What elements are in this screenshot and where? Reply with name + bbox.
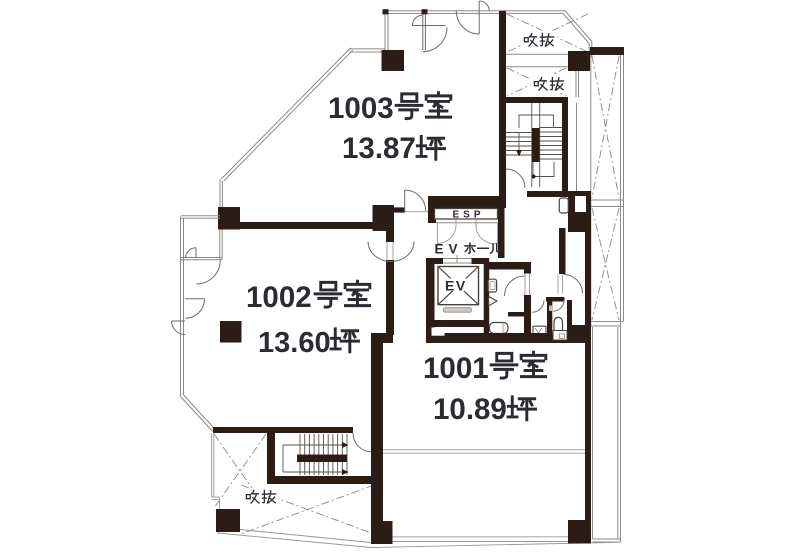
svg-text:1002: 1002 [246,281,312,314]
svg-text:1001: 1001 [423,352,489,385]
svg-text:13.87: 13.87 [342,132,416,165]
svg-text:EV: EV [445,278,467,294]
svg-text:10.89: 10.89 [433,393,507,426]
svg-text:13.60: 13.60 [258,327,331,359]
svg-text:1003: 1003 [328,92,394,125]
svg-text:EV: EV [435,242,463,257]
svg-text:ESP: ESP [453,210,485,221]
